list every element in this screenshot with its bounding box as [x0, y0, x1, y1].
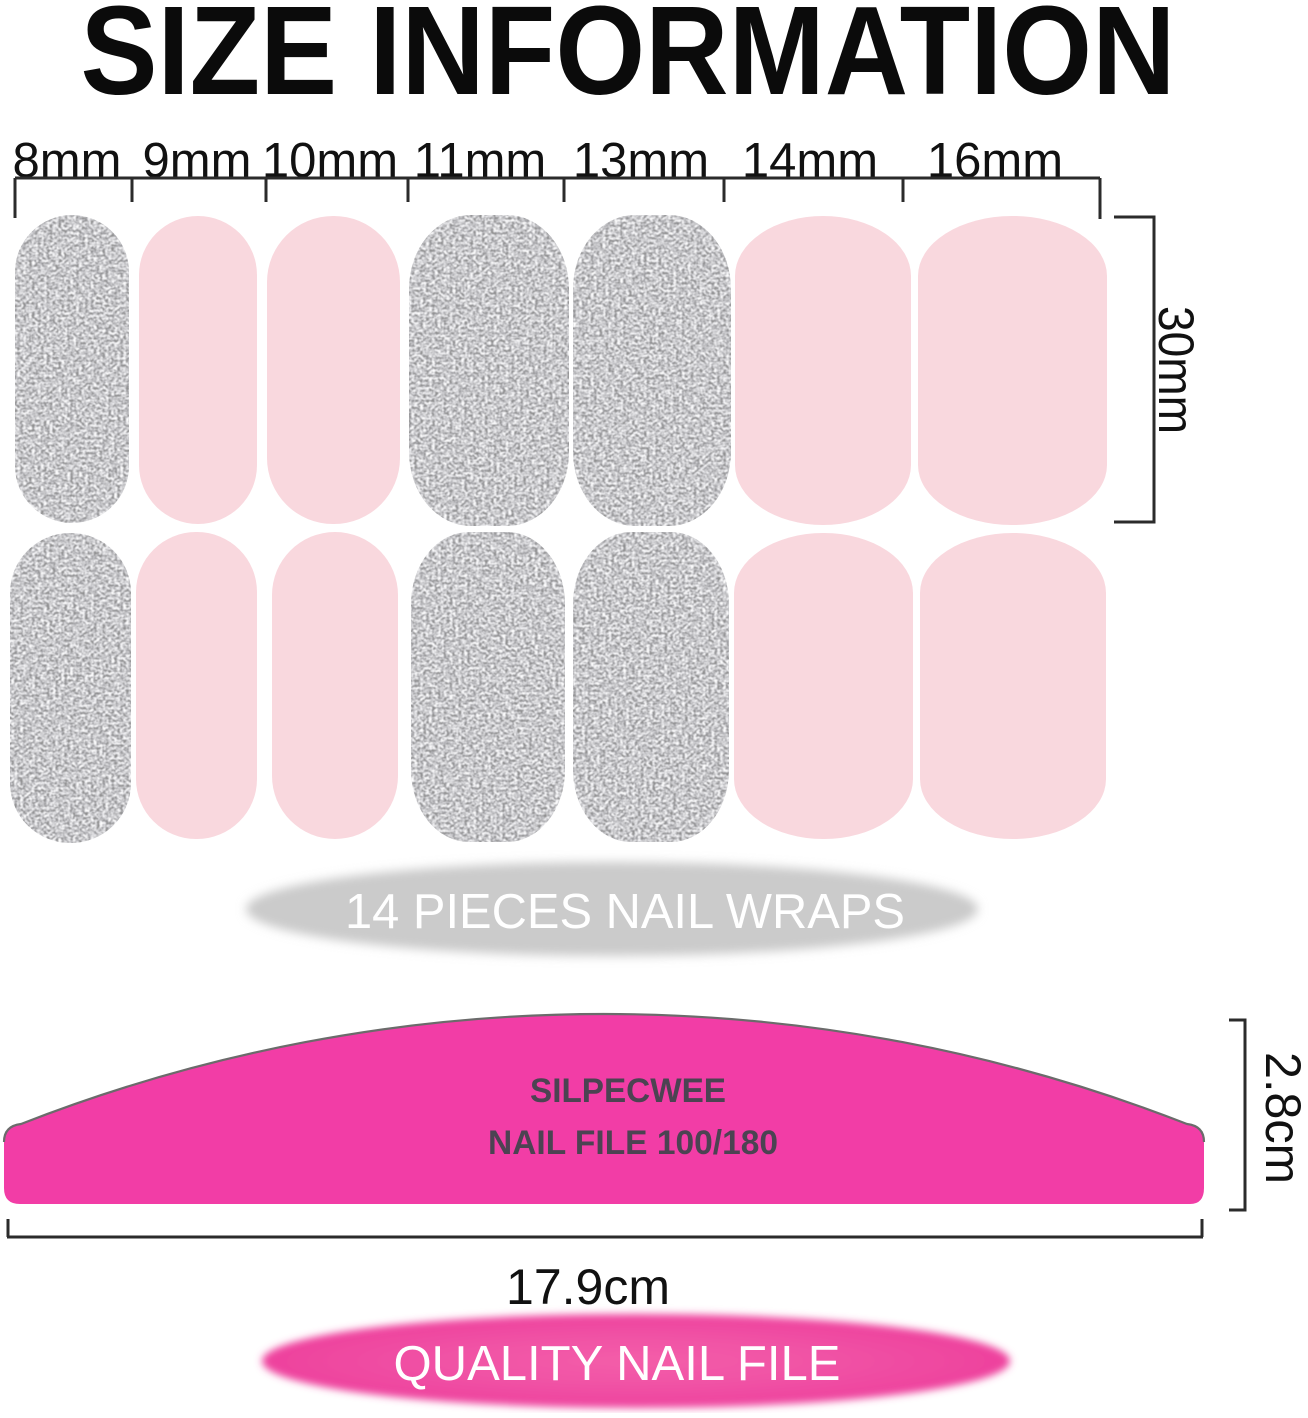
svg-text:NAIL FILE 100/180: NAIL FILE 100/180	[488, 1124, 778, 1162]
svg-text:30mm: 30mm	[1148, 306, 1204, 434]
svg-text:13mm: 13mm	[573, 134, 709, 188]
svg-text:8mm: 8mm	[13, 134, 122, 188]
svg-text:16mm: 16mm	[927, 134, 1063, 188]
svg-text:SILPECWEE: SILPECWEE	[530, 1072, 726, 1110]
svg-text:2.8cm: 2.8cm	[1255, 1052, 1308, 1184]
svg-text:SIZE INFORMATION: SIZE INFORMATION	[81, 0, 1176, 121]
svg-text:14mm: 14mm	[742, 134, 878, 188]
svg-text:QUALITY NAIL FILE: QUALITY NAIL FILE	[394, 1337, 841, 1391]
svg-text:9mm: 9mm	[143, 134, 252, 188]
svg-text:11mm: 11mm	[414, 134, 547, 188]
svg-text:17.9cm: 17.9cm	[506, 1259, 670, 1315]
svg-text:10mm: 10mm	[262, 134, 398, 188]
svg-text:14 PIECES NAIL WRAPS: 14 PIECES NAIL WRAPS	[345, 885, 905, 939]
